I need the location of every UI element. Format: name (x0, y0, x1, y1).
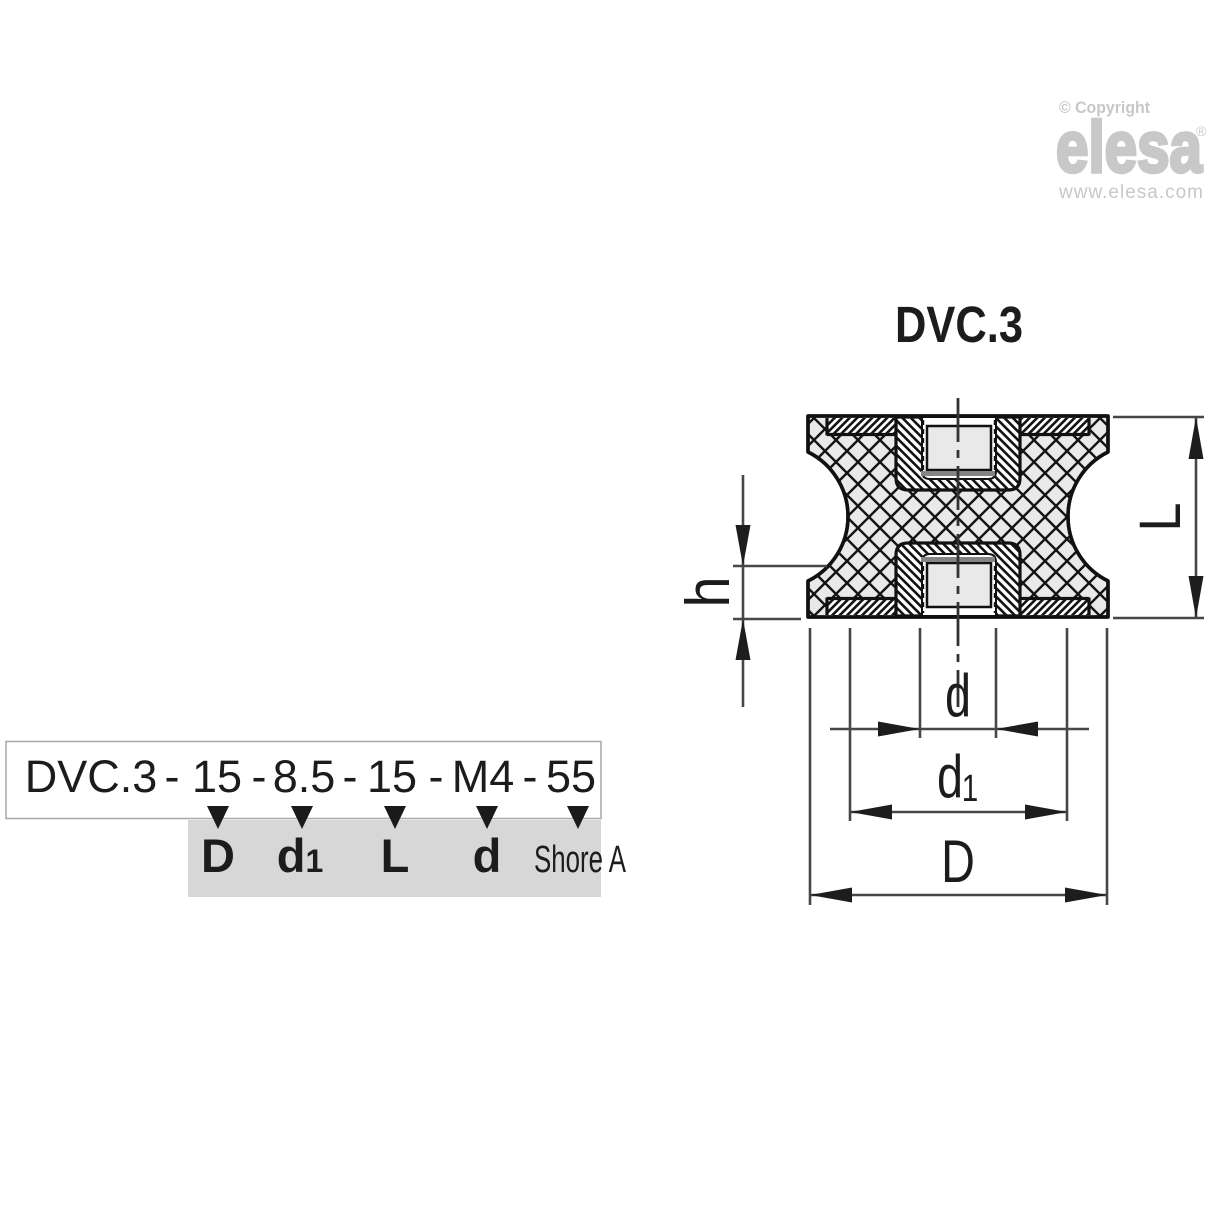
svg-text:-: - (343, 751, 358, 802)
svg-text:55: 55 (546, 751, 596, 802)
svg-text:-: - (165, 751, 180, 802)
svg-text:-: - (429, 751, 444, 802)
svg-text:DVC.3: DVC.3 (895, 296, 1023, 353)
svg-text:d: d (945, 662, 971, 729)
svg-text:www.elesa.com: www.elesa.com (1058, 182, 1203, 203)
svg-text:15: 15 (192, 751, 242, 802)
svg-text:d: d (937, 743, 963, 810)
svg-text:Shore A: Shore A (534, 839, 626, 881)
svg-text:15: 15 (367, 751, 417, 802)
svg-text:-: - (252, 751, 267, 802)
svg-text:DVC.3: DVC.3 (25, 751, 158, 802)
svg-text:-: - (523, 751, 538, 802)
svg-text:L: L (381, 829, 410, 882)
svg-text:L: L (1127, 502, 1192, 531)
svg-text:D: D (941, 828, 975, 895)
svg-text:d: d (473, 829, 502, 882)
svg-text:h: h (674, 576, 742, 607)
svg-text:M4: M4 (452, 751, 515, 802)
svg-text:elesa: elesa (1056, 108, 1203, 188)
svg-text:®: ® (1196, 123, 1207, 139)
svg-text:1: 1 (962, 768, 978, 810)
svg-text:D: D (201, 829, 235, 882)
svg-text:8.5: 8.5 (273, 751, 336, 802)
